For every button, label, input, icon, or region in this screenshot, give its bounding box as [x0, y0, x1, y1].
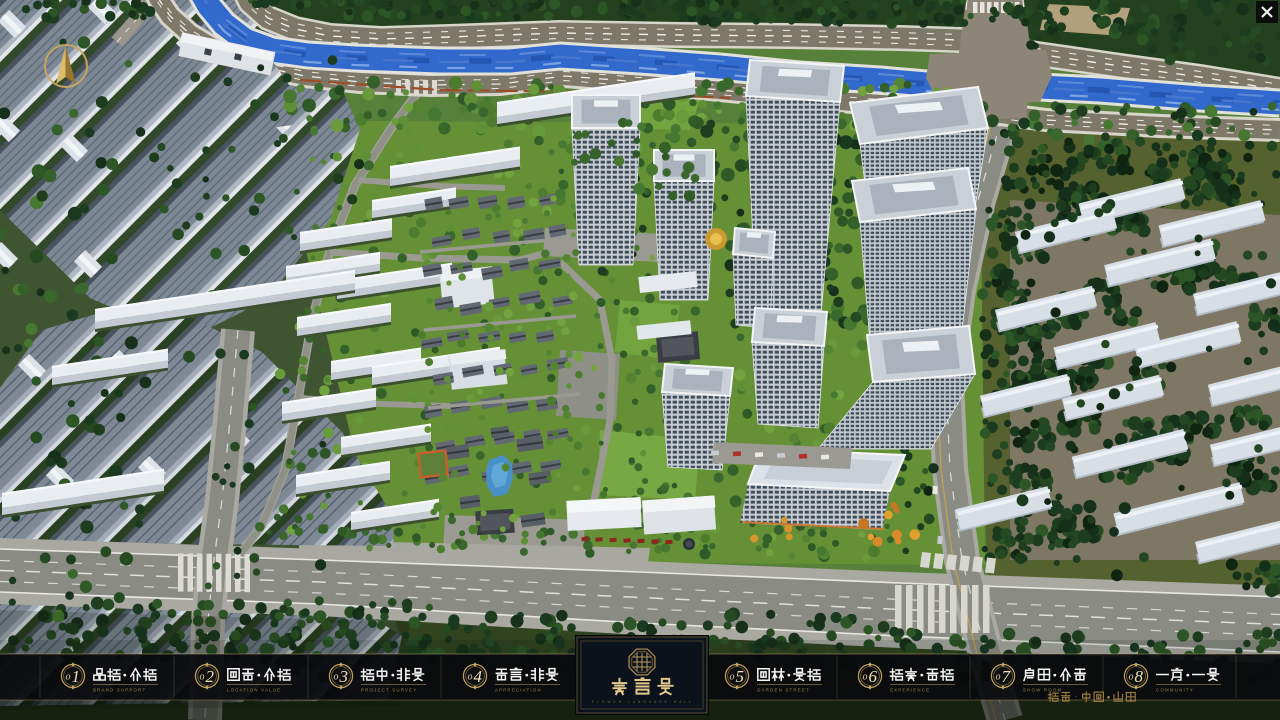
svg-text:PROJECT SURVEY: PROJECT SURVEY: [361, 688, 417, 693]
svg-text:F L O W E R · L A N G U A G E: F L O W E R · L A N G U A G E · H A L L: [592, 700, 692, 704]
svg-text:o: o: [863, 672, 868, 683]
svg-text:o: o: [1129, 672, 1134, 683]
svg-text:1: 1: [72, 667, 81, 686]
svg-text:COMMUNITY: COMMUNITY: [1156, 688, 1194, 693]
svg-text:o: o: [200, 672, 205, 683]
svg-text:3: 3: [339, 667, 349, 686]
svg-text:o: o: [66, 672, 71, 683]
svg-text:BRAND SUPPORT: BRAND SUPPORT: [93, 688, 146, 693]
svg-text:4: 4: [474, 667, 483, 686]
svg-text:SHOW ROOM: SHOW ROOM: [1023, 688, 1062, 693]
svg-text:GARDEN STREET: GARDEN STREET: [757, 688, 810, 693]
svg-text:2: 2: [206, 667, 215, 686]
svg-text:5: 5: [736, 667, 745, 686]
svg-text:o: o: [730, 672, 735, 683]
svg-text:8: 8: [1135, 667, 1144, 686]
svg-text:6: 6: [869, 667, 878, 686]
svg-text::: :: [1075, 694, 1077, 703]
svg-text:o: o: [334, 672, 339, 683]
svg-text:o: o: [468, 672, 473, 683]
svg-text:o: o: [996, 672, 1001, 683]
svg-text:APPRECIATION: APPRECIATION: [495, 688, 542, 693]
svg-text:EXPERIENCE: EXPERIENCE: [890, 688, 930, 693]
svg-text:LOCATION VALUE: LOCATION VALUE: [227, 688, 281, 693]
